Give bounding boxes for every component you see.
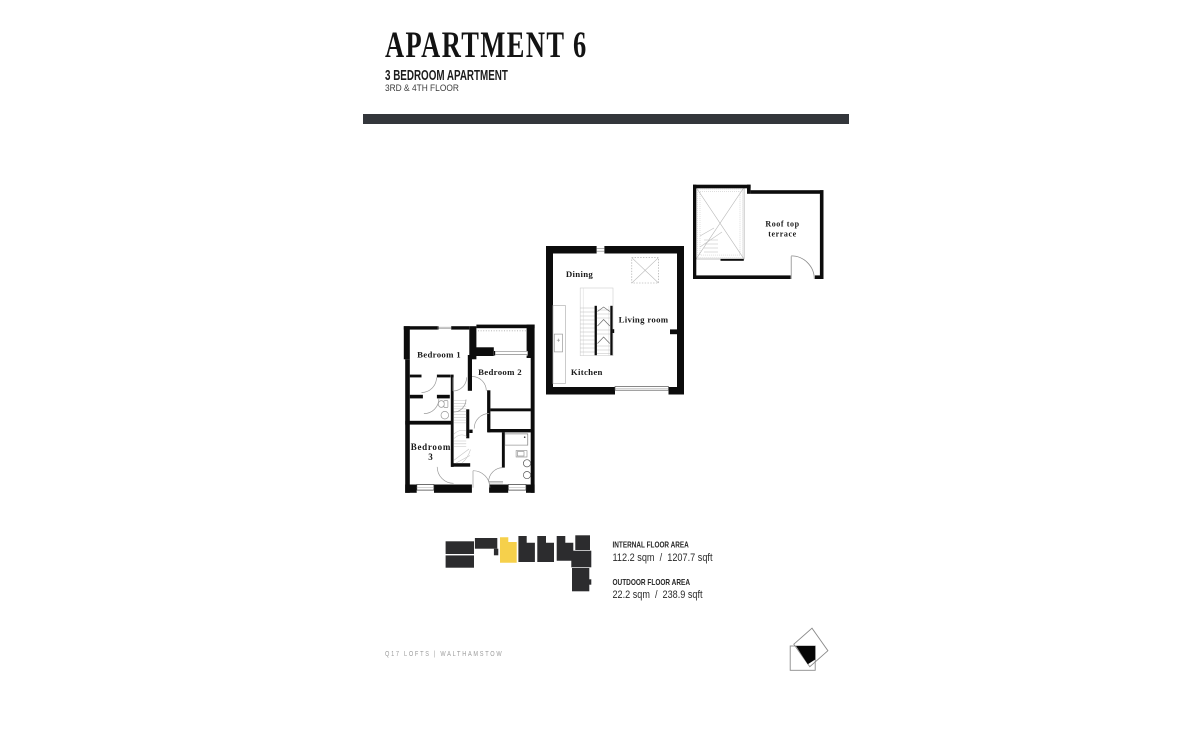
svg-text:Bedroom: Bedroom (411, 442, 451, 452)
svg-text:terrace: terrace (768, 230, 797, 239)
svg-text:INTERNAL FLOOR AREA: INTERNAL FLOOR AREA (613, 540, 689, 549)
svg-text:Kitchen: Kitchen (571, 367, 603, 377)
svg-text:3: 3 (428, 452, 433, 462)
svg-text:22.2 sqm / 238.9 sqft: 22.2 sqm / 238.9 sqft (613, 589, 703, 601)
svg-text:Roof top: Roof top (765, 220, 799, 229)
svg-text:Dining: Dining (566, 269, 594, 279)
svg-text:Bedroom 2: Bedroom 2 (478, 367, 522, 377)
svg-text:OUTDOOR FLOOR AREA: OUTDOOR FLOOR AREA (613, 578, 691, 587)
svg-text:Bedroom 1: Bedroom 1 (417, 350, 461, 360)
svg-text:Living room: Living room (619, 315, 669, 325)
svg-text:112.2 sqm / 1207.7 sqft: 112.2 sqm / 1207.7 sqft (613, 552, 713, 564)
